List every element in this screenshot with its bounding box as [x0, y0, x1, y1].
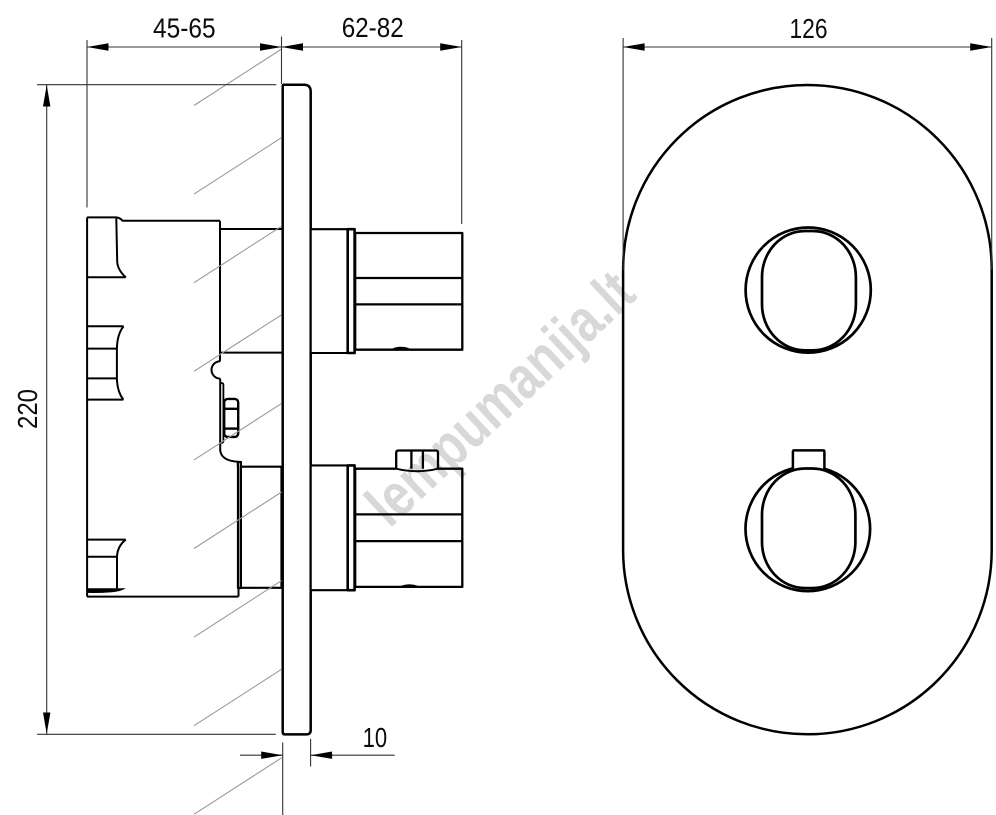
svg-text:10: 10 [363, 721, 388, 753]
svg-text:126: 126 [790, 12, 828, 44]
svg-text:220: 220 [11, 389, 43, 429]
svg-text:62-82: 62-82 [342, 11, 404, 43]
svg-text:45-65: 45-65 [153, 12, 216, 44]
